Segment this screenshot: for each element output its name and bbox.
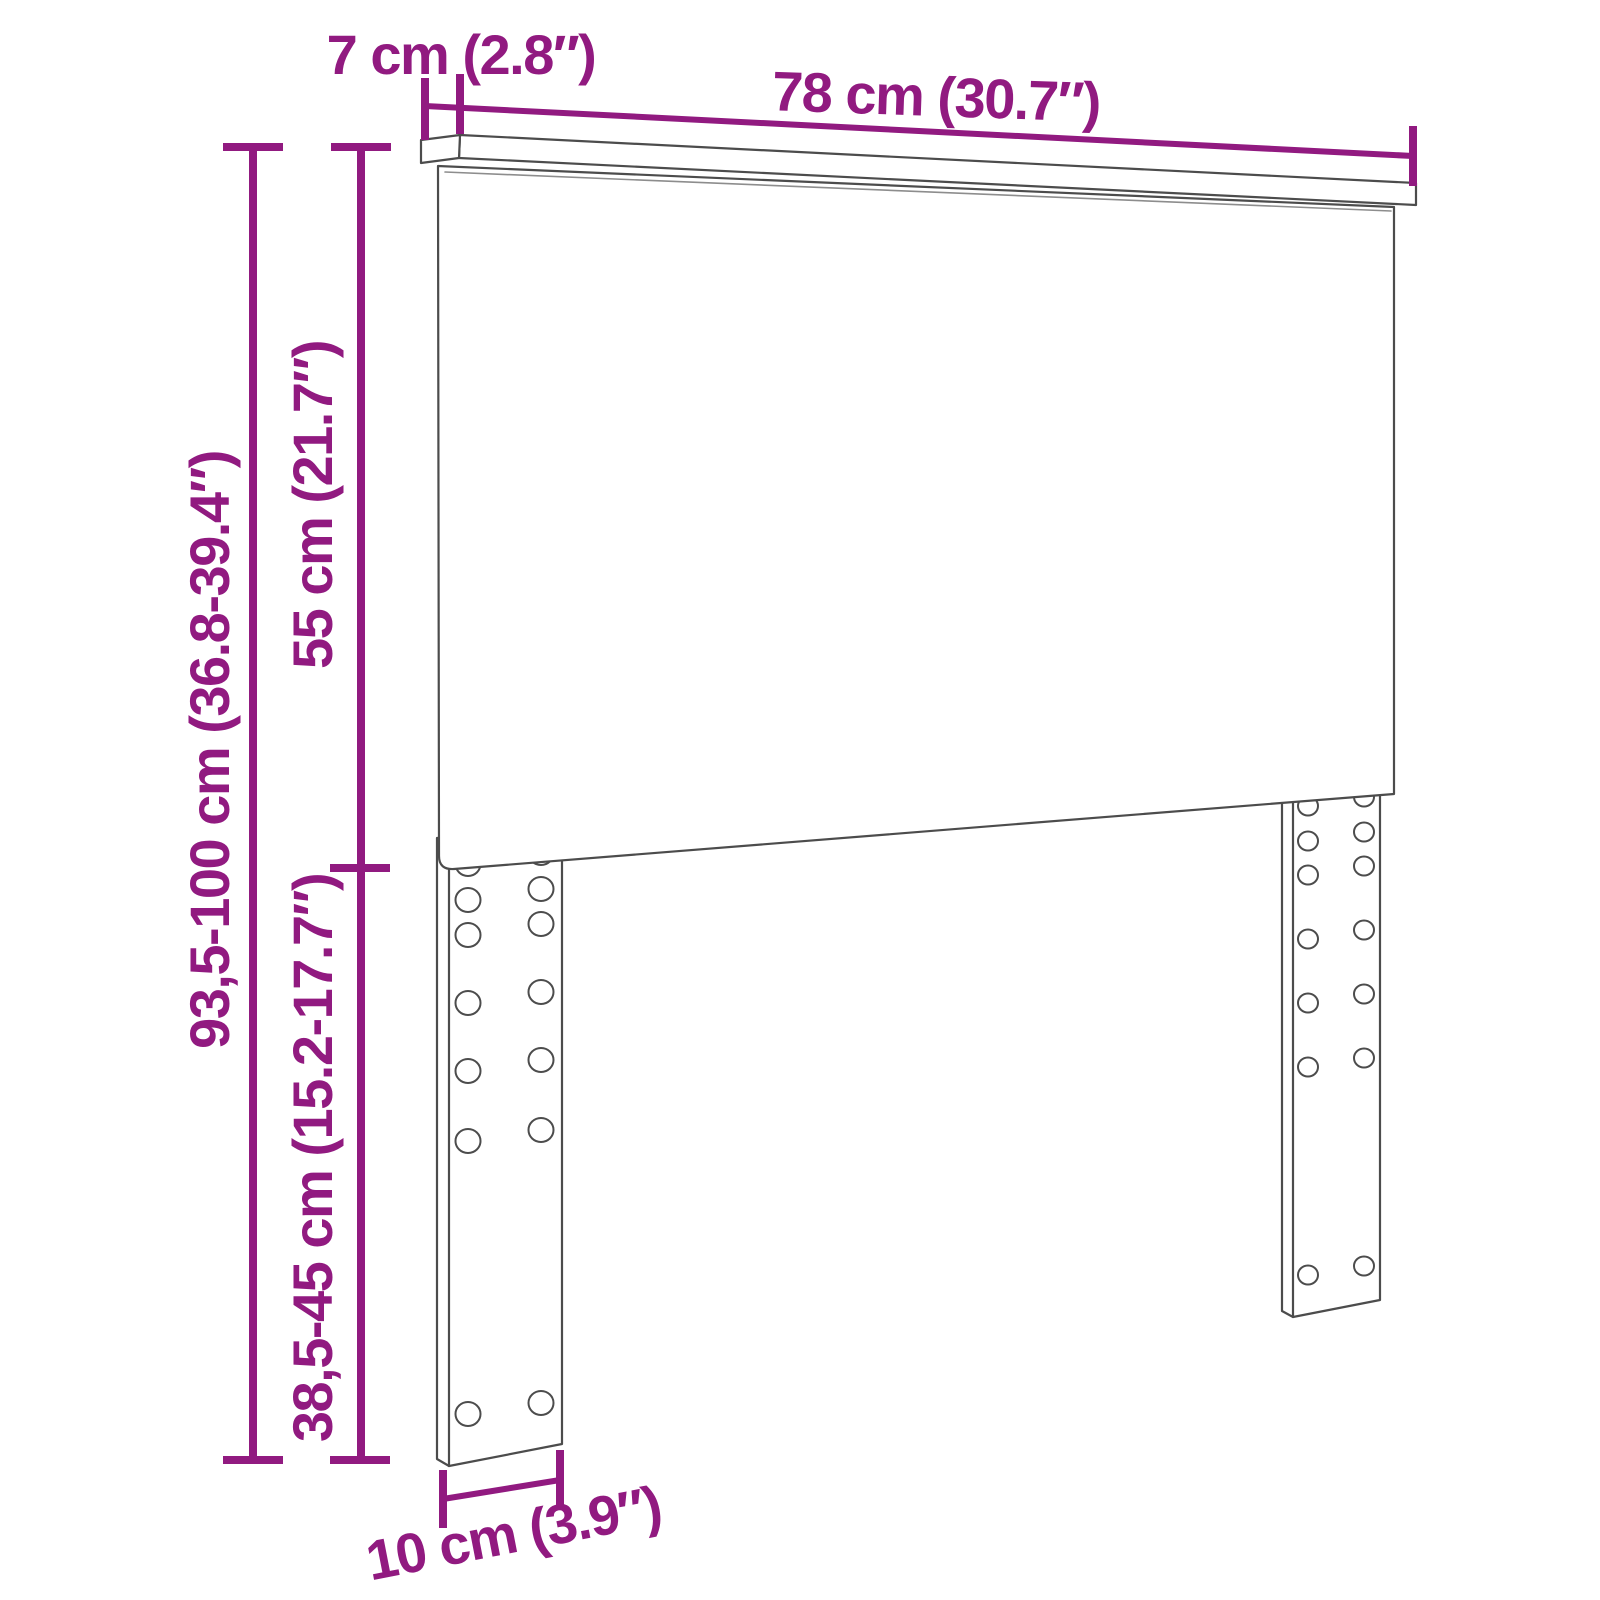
headboard-panel [438,166,1394,869]
label-top-depth: 7 cm (2.8″) [327,23,596,86]
right-leg [1282,770,1380,1317]
label-total-height: 93,5-100 cm (36.8-39.4″) [178,451,241,1049]
left-leg [437,830,562,1466]
label-panel-height: 55 cm (21.7″) [281,341,344,669]
headboard-drawing: 7 cm (2.8″) 78 cm (30.7″) 55 cm (21.7″) … [0,0,1600,1600]
label-leg-height: 38,5-45 cm (15.2-17.7″) [281,874,344,1442]
dimension-diagram: 7 cm (2.8″) 78 cm (30.7″) 55 cm (21.7″) … [0,0,1600,1600]
right-leg-body [1282,770,1380,1317]
label-leg-depth: 10 cm (3.9″) [361,1473,666,1592]
label-width: 78 cm (30.7″) [771,59,1101,133]
